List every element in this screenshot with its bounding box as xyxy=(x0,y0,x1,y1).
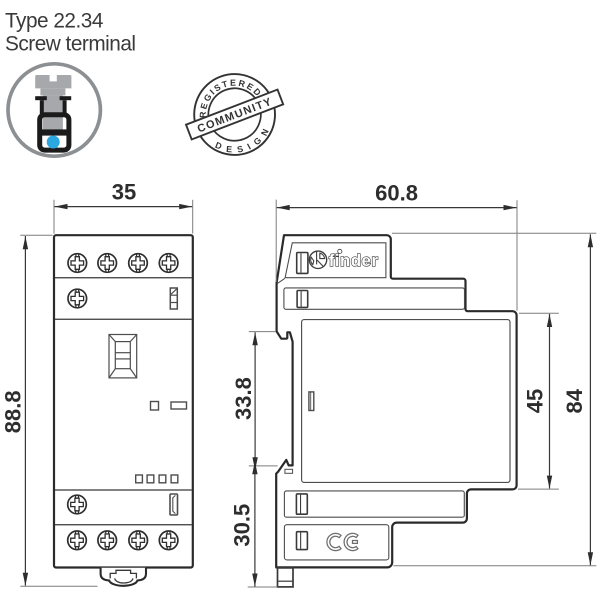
svg-text:33.8: 33.8 xyxy=(231,377,256,420)
svg-text:Screw terminal: Screw terminal xyxy=(5,32,136,55)
svg-text:finder: finder xyxy=(329,251,379,270)
svg-text:88.8: 88.8 xyxy=(1,390,26,433)
svg-text:60.8: 60.8 xyxy=(375,180,418,205)
svg-text:Type 22.34: Type 22.34 xyxy=(5,9,103,32)
svg-text:30.5: 30.5 xyxy=(230,504,255,547)
svg-text:35: 35 xyxy=(112,179,136,204)
svg-text:45: 45 xyxy=(522,389,547,413)
svg-text:84: 84 xyxy=(562,388,587,413)
